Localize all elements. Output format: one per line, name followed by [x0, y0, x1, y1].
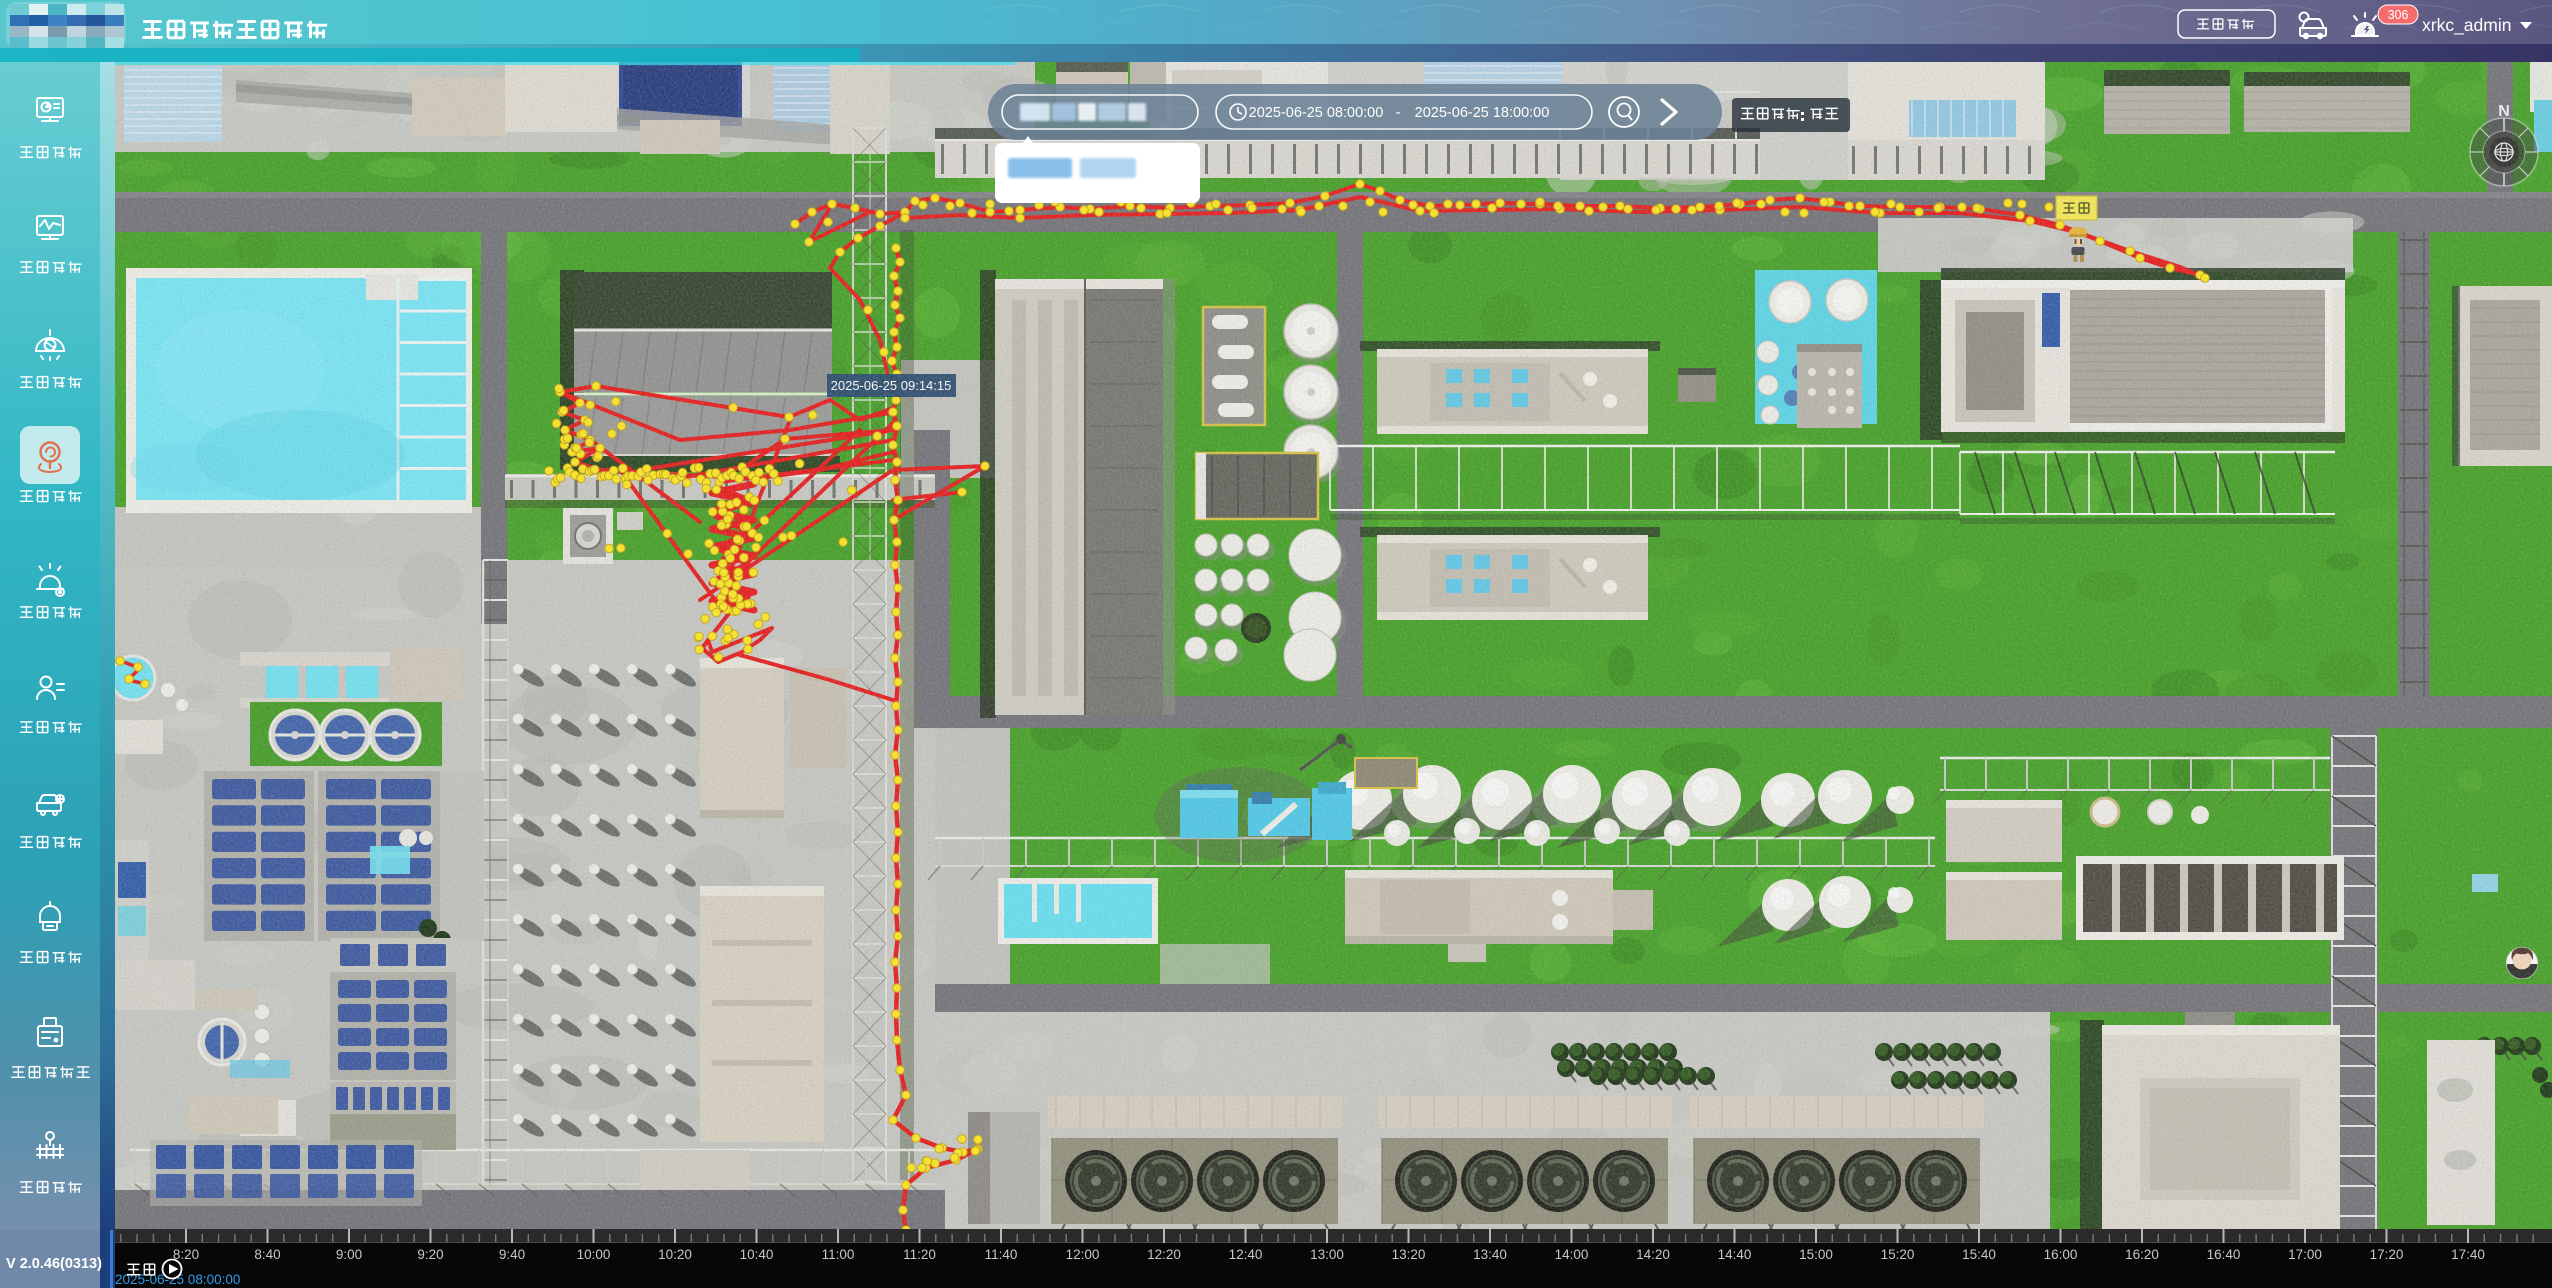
- svg-text:8:40: 8:40: [254, 1247, 280, 1262]
- svg-text:2025-06-25 08:00:00: 2025-06-25 08:00:00: [1249, 105, 1384, 121]
- svg-text:9:00: 9:00: [336, 1247, 362, 1262]
- svg-text:16:40: 16:40: [2207, 1247, 2241, 1262]
- svg-text:14:20: 14:20: [1636, 1247, 1670, 1262]
- svg-text:306: 306: [2388, 8, 2409, 22]
- svg-text:16:00: 16:00: [2044, 1247, 2078, 1262]
- svg-text:16:20: 16:20: [2125, 1247, 2159, 1262]
- svg-text:8:20: 8:20: [173, 1247, 199, 1262]
- svg-text:15:00: 15:00: [1799, 1247, 1833, 1262]
- svg-text:-: -: [1396, 105, 1401, 121]
- svg-text:14:00: 14:00: [1555, 1247, 1589, 1262]
- svg-text:12:00: 12:00: [1066, 1247, 1100, 1262]
- svg-text:11:20: 11:20: [903, 1247, 936, 1262]
- svg-text:17:40: 17:40: [2451, 1247, 2485, 1262]
- svg-text:10:20: 10:20: [658, 1247, 692, 1262]
- svg-text:12:40: 12:40: [1229, 1247, 1263, 1262]
- svg-text:13:40: 13:40: [1473, 1247, 1507, 1262]
- svg-text:10:00: 10:00: [577, 1247, 611, 1262]
- svg-text:xrkc_admin: xrkc_admin: [2422, 15, 2511, 36]
- svg-text:10:40: 10:40: [740, 1247, 774, 1262]
- svg-text:11:00: 11:00: [822, 1247, 855, 1262]
- svg-text:13:00: 13:00: [1310, 1247, 1344, 1262]
- svg-text:9:40: 9:40: [499, 1247, 525, 1262]
- svg-text:V 2.0.46(0313): V 2.0.46(0313): [6, 1256, 102, 1272]
- svg-text:17:20: 17:20: [2370, 1247, 2404, 1262]
- svg-text:2025-06-25 18:00:00: 2025-06-25 18:00:00: [1415, 105, 1550, 121]
- svg-text:11:40: 11:40: [985, 1247, 1018, 1262]
- svg-text:14:40: 14:40: [1718, 1247, 1752, 1262]
- svg-text:13:20: 13:20: [1392, 1247, 1426, 1262]
- svg-text:15:20: 15:20: [1881, 1247, 1915, 1262]
- svg-text:9:20: 9:20: [417, 1247, 443, 1262]
- svg-text:15:40: 15:40: [1962, 1247, 1996, 1262]
- svg-text:12:20: 12:20: [1147, 1247, 1181, 1262]
- svg-text:17:00: 17:00: [2288, 1247, 2322, 1262]
